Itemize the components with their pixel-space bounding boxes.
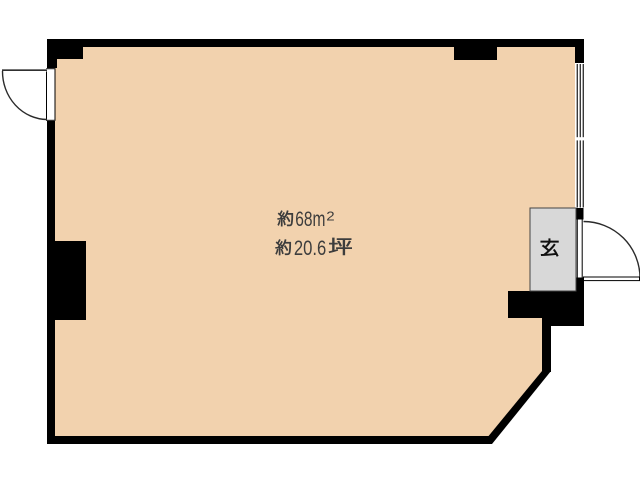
svg-text:68m: 68m [295,208,325,231]
svg-text:2: 2 [326,209,334,224]
svg-text:20.6: 20.6 [294,237,326,260]
